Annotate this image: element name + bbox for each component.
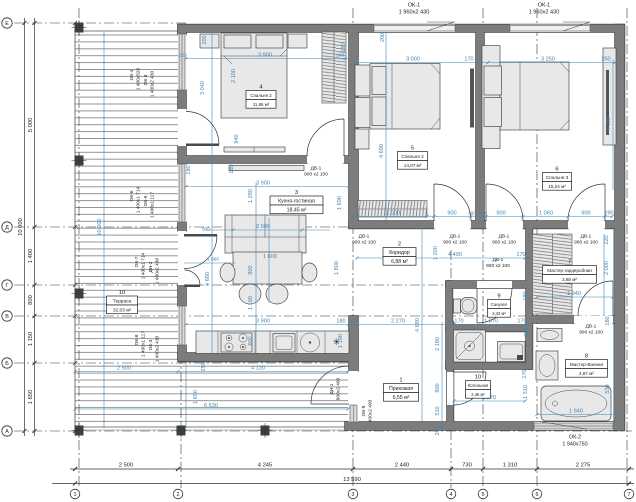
svg-text:3: 3 [295,190,298,196]
svg-text:ОК-1: ОК-1 [408,3,421,9]
svg-text:1 400х2 430: 1 400х2 430 [150,70,156,97]
svg-text:200: 200 [435,426,441,435]
svg-text:32,03 м²: 32,03 м² [113,307,132,313]
svg-text:1: 1 [74,492,77,498]
svg-text:Кухня-гостиная: Кухня-гостиная [278,199,315,205]
svg-text:ДН-1: ДН-1 [329,383,335,394]
svg-text:ДН-2: ДН-2 [148,261,154,272]
svg-text:530: 530 [605,384,611,393]
svg-text:2 180: 2 180 [435,337,441,351]
svg-text:2 000: 2 000 [256,224,270,230]
svg-text:1 940: 1 940 [567,291,581,297]
svg-text:3 000: 3 000 [406,57,420,63]
svg-text:220: 220 [604,235,610,244]
svg-text:4 690: 4 690 [606,117,612,131]
svg-text:200: 200 [202,35,208,44]
svg-text:ОК-3: ОК-3 [148,339,154,350]
svg-text:4 680: 4 680 [415,318,421,332]
svg-text:900: 900 [447,211,456,217]
svg-text:800: 800 [435,383,441,392]
svg-text:2,45 м²: 2,45 м² [471,392,485,397]
svg-text:ОК-7: ОК-7 [134,256,140,267]
svg-text:6: 6 [555,167,558,173]
svg-text:100: 100 [468,211,476,217]
svg-text:180: 180 [341,43,347,52]
svg-text:4 680: 4 680 [205,272,211,286]
svg-text:А: А [5,429,9,435]
svg-text:ДВ-1: ДВ-1 [581,234,592,240]
svg-text:1 150: 1 150 [28,332,34,347]
svg-text:290: 290 [604,211,613,217]
svg-text:830: 830 [524,327,530,336]
svg-text:900 х2 100: 900 х2 100 [492,240,516,246]
svg-text:2 275: 2 275 [576,463,591,469]
svg-text:400х2 400: 400х2 400 [368,399,374,422]
svg-text:10 000: 10 000 [97,218,103,235]
svg-text:800: 800 [248,265,254,274]
svg-text:1 940х750: 1 940х750 [562,442,587,448]
svg-text:1: 1 [399,378,402,384]
svg-text:6,88 м²: 6,88 м² [391,259,408,265]
svg-text:1 280: 1 280 [248,189,254,203]
svg-text:900 х2 100: 900 х2 100 [574,240,598,246]
svg-text:800: 800 [28,295,34,305]
svg-text:1 400х1 714: 1 400х1 714 [141,252,147,279]
svg-text:Терраса: Терраса [113,299,132,305]
svg-text:1 100: 1 100 [248,296,254,310]
svg-text:4,87 м²: 4,87 м² [579,371,594,376]
svg-text:940: 940 [234,134,240,143]
svg-text:950: 950 [202,227,210,233]
svg-text:3 040: 3 040 [200,81,206,95]
svg-text:2 500: 2 500 [119,463,134,469]
svg-text:1 310: 1 310 [523,385,529,399]
svg-text:1 800: 1 800 [334,261,340,275]
svg-text:Прихожая: Прихожая [389,386,413,392]
svg-text:7: 7 [628,492,631,498]
svg-text:2 270: 2 270 [391,319,405,325]
svg-text:900 х2 100: 900 х2 100 [579,330,603,336]
svg-text:Спальня 3: Спальня 3 [546,175,569,180]
svg-text:900: 900 [496,211,505,217]
svg-text:180: 180 [523,291,529,300]
svg-text:1 400х1 714: 1 400х1 714 [136,186,142,213]
svg-text:900 х2 100: 900 х2 100 [352,240,376,246]
svg-text:Котельная: Котельная [468,383,488,388]
svg-text:3 250: 3 250 [541,57,555,63]
svg-text:18,45 м²: 18,45 м² [287,207,307,213]
svg-text:730: 730 [462,463,472,469]
svg-text:900: 900 [581,211,590,217]
svg-text:250: 250 [201,362,207,371]
svg-text:900х2 400: 900х2 400 [336,377,342,400]
svg-text:2: 2 [177,492,180,498]
svg-text:11,86 м²: 11,86 м² [253,102,270,107]
svg-text:170: 170 [454,319,463,325]
svg-text:ДВ-1: ДВ-1 [499,234,510,240]
svg-text:В: В [5,314,9,320]
svg-text:1 060: 1 060 [539,211,553,217]
svg-text:250: 250 [601,57,610,63]
svg-text:1 400х1 117: 1 400х1 117 [150,192,156,218]
svg-text:2 500: 2 500 [117,366,131,372]
svg-text:3: 3 [352,492,355,498]
svg-text:1 870: 1 870 [484,319,498,325]
svg-text:ОК-2: ОК-2 [569,435,581,441]
svg-text:3,88 м²: 3,88 м² [562,277,577,282]
svg-text:2,42 м²: 2,42 м² [492,311,506,316]
svg-text:6 630: 6 630 [204,403,218,409]
svg-text:1 310: 1 310 [503,463,518,469]
svg-text:Д: Д [5,225,9,231]
svg-text:3 900: 3 900 [258,53,272,59]
svg-text:2 000: 2 000 [386,211,400,217]
svg-text:1 400х2 430: 1 400х2 430 [155,335,161,362]
svg-text:100: 100 [479,211,487,217]
svg-text:4 245: 4 245 [258,463,273,469]
svg-text:200: 200 [380,33,386,42]
svg-text:ОК-9: ОК-9 [361,405,367,416]
svg-text:1 400х2 430: 1 400х2 430 [155,257,161,284]
svg-text:Спальня 2: Спальня 2 [401,154,424,159]
svg-text:5: 5 [482,492,485,498]
svg-text:ОК-4: ОК-4 [129,69,135,80]
svg-text:ОК-5: ОК-5 [143,195,149,206]
svg-text:6: 6 [536,492,539,498]
svg-text:180: 180 [336,319,345,325]
svg-text:170: 170 [516,252,525,258]
svg-text:1 960х2 430: 1 960х2 430 [399,10,430,16]
svg-text:1 650: 1 650 [193,390,199,404]
svg-text:170: 170 [464,57,473,63]
svg-text:2 000: 2 000 [604,261,610,275]
svg-text:Спальня 2: Спальня 2 [250,93,272,98]
svg-text:Б: Б [5,361,9,367]
svg-text:1 200: 1 200 [433,246,439,260]
svg-text:6,55 м²: 6,55 м² [393,395,410,401]
svg-text:14,07 м²: 14,07 м² [404,163,422,168]
svg-text:1 400х1 117: 1 400х1 117 [141,331,147,357]
svg-text:1 650: 1 650 [28,390,34,405]
svg-text:180: 180 [605,316,611,325]
svg-text:7: 7 [568,260,571,266]
svg-text:ДВ-1: ДВ-1 [586,324,597,330]
svg-text:4 490: 4 490 [448,252,462,258]
svg-text:4 690: 4 690 [379,144,385,158]
svg-text:900 х2 100: 900 х2 100 [304,172,328,178]
svg-text:15,24 м²: 15,24 м² [548,184,566,189]
svg-text:ОК-3: ОК-3 [143,74,149,85]
svg-text:170: 170 [517,319,526,325]
svg-text:1 940: 1 940 [569,409,583,415]
svg-text:ДВ-1: ДВ-1 [450,234,461,240]
svg-text:10: 10 [119,290,125,296]
svg-text:170: 170 [522,369,528,378]
svg-text:10: 10 [475,375,481,381]
svg-text:1 190: 1 190 [338,334,344,348]
svg-text:13 590: 13 590 [343,477,361,483]
svg-text:1 400х520: 1 400х520 [136,67,142,90]
svg-text:ОК-1: ОК-1 [538,3,551,9]
svg-text:3 900: 3 900 [256,181,270,187]
svg-text:ДВ-1: ДВ-1 [359,234,370,240]
svg-text:Коридор: Коридор [389,250,410,256]
svg-text:1 060: 1 060 [207,257,219,263]
svg-text:Г: Г [6,283,9,289]
svg-text:8: 8 [585,354,588,360]
svg-text:1 400: 1 400 [28,249,34,264]
svg-text:600: 600 [248,336,254,345]
svg-text:ДВ-1: ДВ-1 [311,166,322,172]
svg-text:Е: Е [5,21,9,27]
svg-text:180: 180 [186,165,192,174]
svg-text:1 690: 1 690 [337,196,343,210]
svg-text:180: 180 [229,164,235,173]
svg-text:5 000: 5 000 [28,118,34,133]
svg-text:3 900: 3 900 [256,319,270,325]
svg-text:Мастер-гардеробная: Мастер-гардеробная [547,268,592,273]
svg-text:2 440: 2 440 [395,463,410,469]
svg-text:2: 2 [398,242,401,248]
svg-text:Санузел: Санузел [491,302,508,307]
svg-text:4: 4 [450,492,453,498]
svg-text:ОК-6: ОК-6 [129,190,135,201]
svg-text:Мастер-Ванная: Мастер-Ванная [570,362,604,367]
svg-text:10 000: 10 000 [18,218,24,236]
svg-text:ДВ-1: ДВ-1 [493,257,504,263]
svg-text:250: 250 [179,53,187,58]
svg-text:ОК-8: ОК-8 [134,334,140,345]
svg-text:2 100: 2 100 [231,69,237,83]
svg-text:1 600: 1 600 [263,254,277,260]
svg-text:900 х2 100: 900 х2 100 [486,263,510,269]
svg-text:5: 5 [411,146,414,152]
svg-text:9: 9 [497,294,500,300]
svg-text:900 х2 100: 900 х2 100 [443,240,467,246]
svg-text:4 130: 4 130 [251,366,265,372]
svg-text:1 960х2 430: 1 960х2 430 [529,10,560,16]
svg-text:510: 510 [435,406,441,415]
